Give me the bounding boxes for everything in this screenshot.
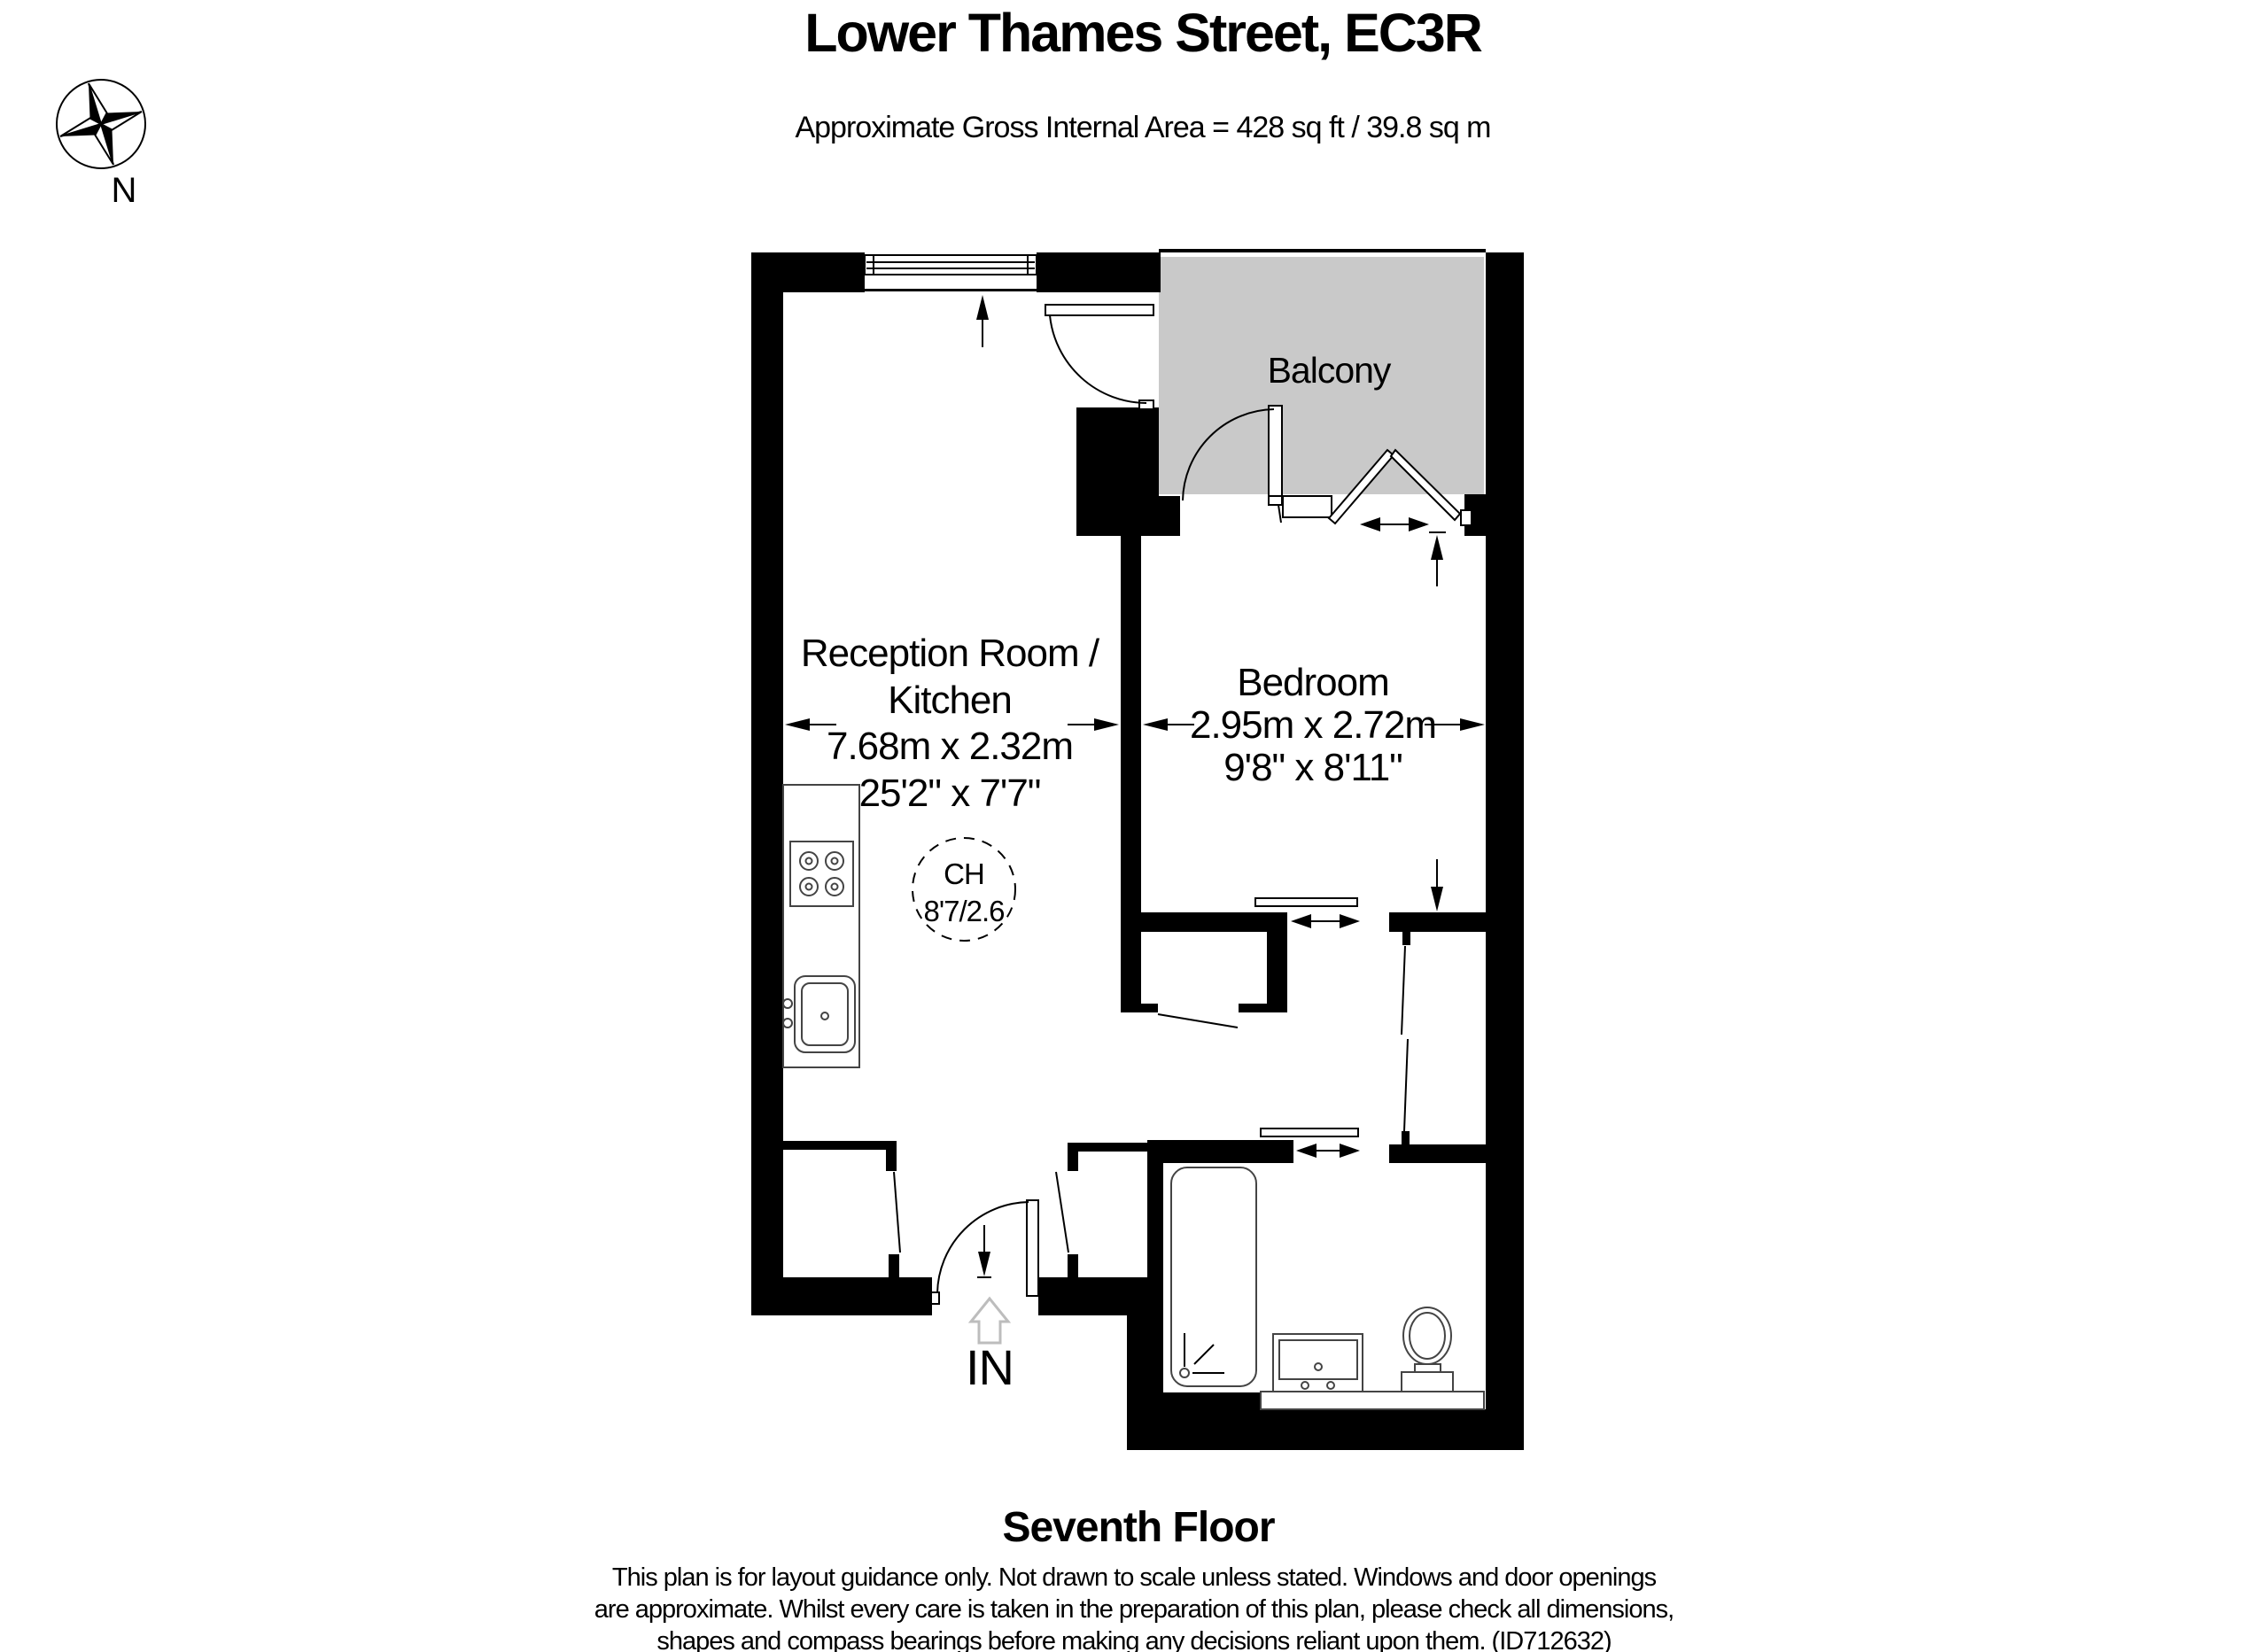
- reception-balcony-door: [1045, 305, 1153, 409]
- entrance-marker: IN: [966, 1299, 1014, 1395]
- bedroom-metric-dimensions: 2.95m x 2.72m: [1190, 703, 1436, 747]
- floorplan-page: Lower Thames Street, EC3R Approximate Gr…: [0, 0, 2268, 1652]
- ceiling-height-line2: 8'7/2.6: [923, 895, 1004, 927]
- bathroom-ledge: [1261, 1392, 1484, 1409]
- compass-rose-icon: N: [48, 71, 154, 210]
- balcony-railing: [1159, 249, 1486, 252]
- balcony-area: Balcony: [1159, 249, 1486, 494]
- floor-name-label: Seventh Floor: [1002, 1504, 1274, 1551]
- disclaimer-line-2: are approximate. Whilst every care is ta…: [594, 1595, 1674, 1624]
- ceiling-height-line1: CH: [944, 857, 984, 890]
- basin-icon: [1273, 1334, 1363, 1392]
- toilet-icon: [1402, 1307, 1453, 1392]
- bathtub-icon: [1171, 1167, 1256, 1386]
- compass-north-label: N: [112, 171, 137, 210]
- page-title: Lower Thames Street, EC3R: [804, 3, 1482, 63]
- utility-cupboard-doors: [1402, 946, 1408, 1131]
- reception-name-line2: Kitchen: [888, 679, 1012, 722]
- disclaimer-line-1: This plan is for layout guidance only. N…: [612, 1563, 1657, 1592]
- balcony-glazed-panel: [1283, 496, 1332, 517]
- disclaimer-line-3: shapes and compass bearings before makin…: [656, 1627, 1611, 1652]
- reception-window: [865, 255, 1037, 291]
- reception-imperial-dimensions: 25'2" x 7'7": [859, 772, 1041, 815]
- bedroom-imperial-dimensions: 9'8" x 8'11": [1223, 746, 1402, 789]
- reception-name-line1: Reception Room /: [801, 632, 1100, 675]
- entrance-label: IN: [966, 1339, 1014, 1395]
- bedroom-label: Bedroom 2.95m x 2.72m 9'8" x 8'11": [1190, 661, 1436, 789]
- ceiling-height-badge: CH 8'7/2.6: [913, 838, 1015, 941]
- floorplan-canvas: Lower Thames Street, EC3R Approximate Gr…: [0, 0, 2268, 1652]
- hob-icon: [790, 842, 853, 906]
- in-arrow-icon: [971, 1299, 1008, 1343]
- gross-internal-area-label: Approximate Gross Internal Area = 428 sq…: [795, 111, 1490, 144]
- balcony-label: Balcony: [1268, 350, 1392, 391]
- bedroom-name: Bedroom: [1237, 661, 1389, 704]
- reception-metric-dimensions: 7.68m x 2.32m: [827, 725, 1073, 768]
- kitchen-sink-icon: [783, 976, 855, 1052]
